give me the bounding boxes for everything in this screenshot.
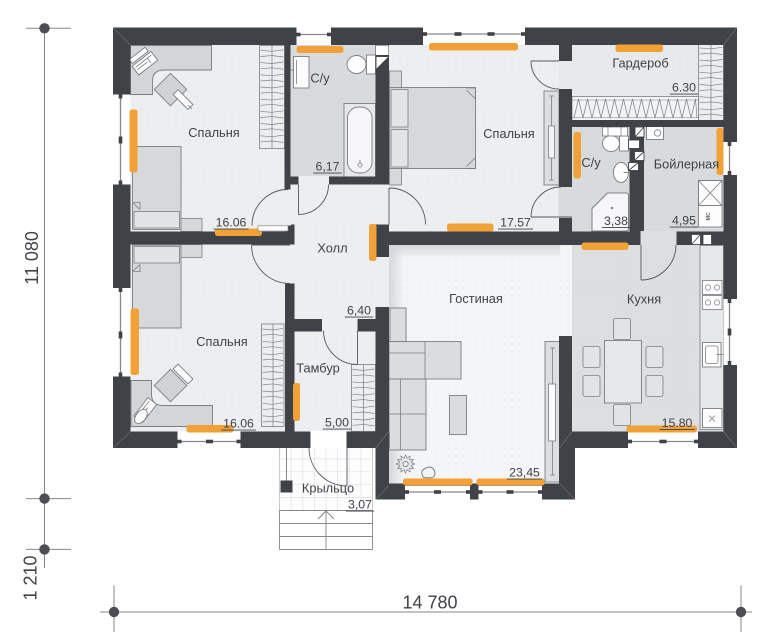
svg-text:Спальня: Спальня — [188, 125, 239, 140]
svg-text:6.30: 6.30 — [672, 81, 696, 95]
svg-text:Спальня: Спальня — [483, 126, 534, 141]
svg-text:16.06: 16.06 — [223, 417, 254, 431]
svg-text:3,07: 3,07 — [348, 498, 372, 512]
svg-text:6,17: 6,17 — [316, 160, 340, 174]
svg-text:4,95: 4,95 — [672, 214, 696, 228]
svg-text:Спальня: Спальня — [196, 334, 247, 349]
svg-text:Гостиная: Гостиная — [449, 291, 503, 306]
svg-text:Холл: Холл — [317, 241, 347, 256]
svg-text:мс: мс — [705, 212, 712, 221]
svg-text:Крыльцо: Крыльцо — [302, 481, 354, 496]
svg-text:14 780: 14 780 — [402, 593, 457, 613]
svg-text:6,40: 6,40 — [347, 304, 371, 318]
svg-text:Бойлерная: Бойлерная — [654, 157, 720, 172]
svg-text:С/у: С/у — [581, 155, 601, 170]
svg-text:1 210: 1 210 — [21, 555, 41, 600]
svg-text:5,00: 5,00 — [325, 416, 349, 430]
svg-text:23,45: 23,45 — [509, 466, 540, 480]
svg-text:Тамбур: Тамбур — [296, 361, 339, 376]
svg-text:17.57: 17.57 — [500, 216, 531, 230]
svg-text:11 080: 11 080 — [22, 231, 42, 285]
svg-text:3,38: 3,38 — [604, 214, 628, 228]
svg-text:Кухня: Кухня — [627, 292, 661, 307]
svg-text:16.06: 16.06 — [216, 216, 247, 230]
svg-text:Гардероб: Гардероб — [612, 56, 668, 71]
svg-text:15.80: 15.80 — [662, 416, 693, 430]
svg-text:С/у: С/у — [310, 71, 330, 86]
